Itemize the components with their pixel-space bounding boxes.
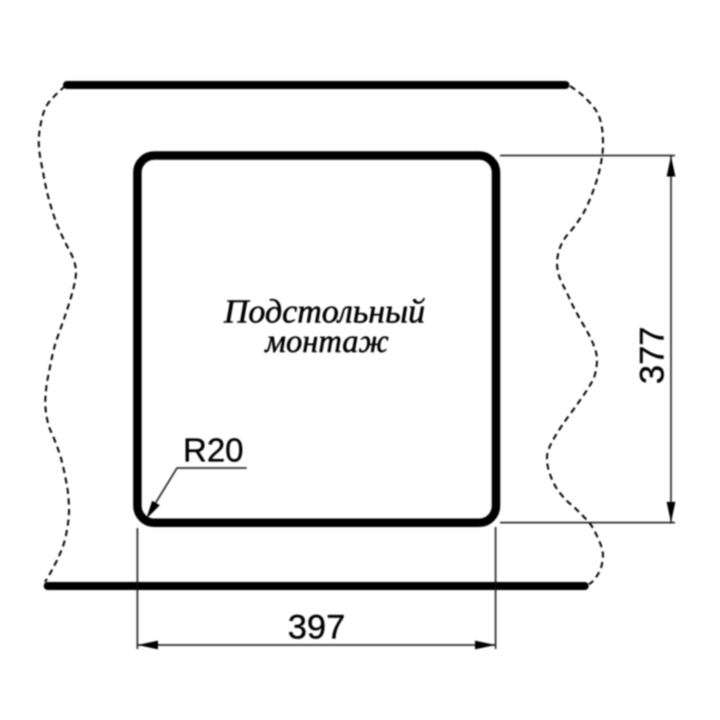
svg-text:монтаж: монтаж [264,324,388,360]
svg-text:R20: R20 [183,432,244,469]
svg-text:377: 377 [634,327,672,385]
svg-text:397: 397 [288,609,346,647]
